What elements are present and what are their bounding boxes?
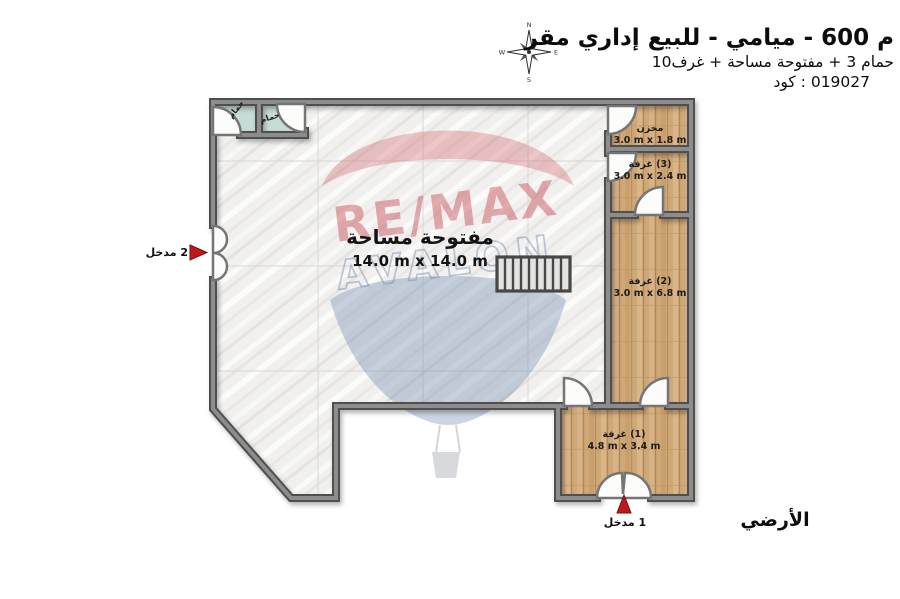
storage-label: ⁨مخزن⁩ 3.0 m x 1.8 m xyxy=(602,123,698,147)
room1-dims: 4.8 m x 3.4 m xyxy=(576,441,672,453)
room1-name: ⁨غرفة⁩ (1) xyxy=(576,429,672,441)
room3-name: ⁨غرفة⁩ (3) xyxy=(602,159,698,171)
room2-floor xyxy=(608,215,691,406)
room2-dims: 3.0 m x 6.8 m xyxy=(602,288,698,300)
listing-code: ⁨كود⁩ : 019027 xyxy=(525,73,894,91)
entrance2-arrow-icon xyxy=(190,245,207,260)
balloon-basket xyxy=(432,452,460,478)
compass-w-label: W xyxy=(499,49,506,57)
open-space-label: ⁨مساحة⁩ ⁨مفتوحة⁩ 14.0 m x 14.0 m xyxy=(330,225,510,270)
room3-label: ⁨غرفة⁩ (3) 3.0 m x 2.4 m xyxy=(602,159,698,183)
storage-dims: 3.0 m x 1.8 m xyxy=(602,135,698,147)
entrance2-label: ⁨مدخل⁩ 2 xyxy=(118,246,188,259)
room3-dims: 3.0 m x 2.4 m xyxy=(602,171,698,183)
listing-header: ⁨مقر⁩ ⁨إداري⁩ ⁨للبيع⁩ - ⁨ميامي⁩ - 600 ⁨م… xyxy=(525,25,894,91)
open-space-dims: 14.0 m x 14.0 m xyxy=(330,252,510,270)
room2-label: ⁨غرفة⁩ (2) 3.0 m x 6.8 m xyxy=(602,276,698,300)
entrance1-label: ⁨مدخل⁩ 1 xyxy=(587,516,663,529)
floor-level-label: ⁨الأرضي⁩ xyxy=(723,509,827,531)
room1-label: ⁨غرفة⁩ (1) 4.8 m x 3.4 m xyxy=(576,429,672,453)
floorplan-page: RE/MAX AVALON xyxy=(0,0,900,599)
listing-subtitle: 10⁨غرف⁩ + ⁨مساحة⁩ ⁨مفتوحة⁩ + 3 ⁨حمام⁩ xyxy=(525,53,894,71)
room2-name: ⁨غرفة⁩ (2) xyxy=(602,276,698,288)
listing-title: ⁨مقر⁩ ⁨إداري⁩ ⁨للبيع⁩ - ⁨ميامي⁩ - 600 ⁨م… xyxy=(525,25,894,53)
balloon-ropes xyxy=(436,425,460,452)
storage-name: ⁨مخزن⁩ xyxy=(602,123,698,135)
open-space-name: ⁨مساحة⁩ ⁨مفتوحة⁩ xyxy=(330,225,510,249)
